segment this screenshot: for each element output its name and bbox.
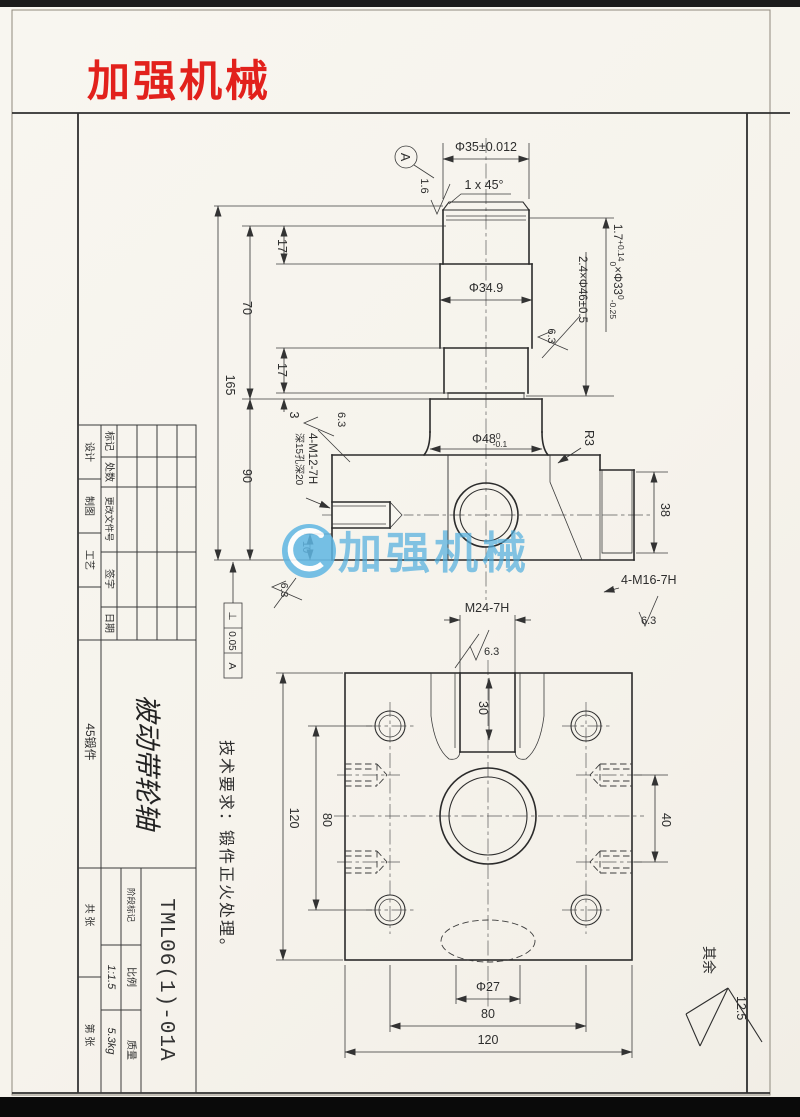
m24-label: M24-7H [465,601,509,615]
gdt-symbol: ⊥ [226,611,238,620]
rev-header-mark: 标记 [103,431,115,451]
watermark: 加强机械 [282,524,530,579]
dim-90-label: 90 [240,469,254,483]
sign-row-design: 设计 [83,442,96,462]
scale-value: 1:1.5 [105,965,117,990]
dim-d35-label: Φ35±0.012 [455,140,517,154]
plan-m24-section: 30 [431,673,544,759]
datum-a-label: A [398,153,412,162]
roughness-1_6-label: 1.6 [418,178,430,193]
dim-70-label: 70 [240,301,254,315]
default-roughness-note: 其余 12.5 [686,946,762,1046]
material-label: 45锻件 [83,723,97,760]
scan-edge-top [0,0,800,7]
groove-top-label: 1.7+0.140×Φ330-0.25 [608,224,626,319]
drawing-canvas: Φ35±0.012 A 1.6 1 x 45° 1.7+0.140×Φ330-0… [0,0,800,1117]
dim-d48-label: Φ480-0.1 [472,431,508,449]
gdt-frame: ⊥ 0.05 A [224,562,242,678]
scale-label: 比例 [125,967,138,987]
r3-label: R3 [582,430,596,446]
others-prefix-label: 其余 [701,946,717,974]
dim-17-top-label: 17 [275,239,289,253]
groove-mid-label: 2.4×Φ46±0.5 [576,256,588,323]
chamfer-label: 1 x 45° [464,178,503,192]
plan-side-holes-hidden [345,764,632,873]
watermark-text: 加强机械 [338,528,530,579]
dim-d27-label: Φ27 [476,980,500,994]
title-block: 标记 处数 更改文件号 签字 日期 设计 制图 工艺 45锻件 被动带轮轴 共 … [78,425,196,1093]
others-value-label: 12.5 [734,996,748,1020]
dim-3-label: 3 [287,412,301,419]
part-name: 被动带轮轴 [131,695,162,833]
m24-note: M24-7H 6.3 [444,601,531,676]
rev-header-sign: 签字 [103,569,116,589]
roughness-6_3-m24: 6.3 [484,646,499,658]
dim-r3: R3 [558,430,596,463]
stage-label: 阶段标记 [126,888,136,923]
rev-header-date: 日期 [103,613,115,633]
dim-40-label: 40 [659,813,673,827]
dim-165-label: 165 [223,375,237,396]
dim-80-left-label: 80 [320,813,334,827]
dim-80-bottom-label: 80 [481,1007,495,1021]
dim-17-low-label: 17 [275,363,289,377]
drawing-number: TML06(1)-01A [154,898,177,1061]
m12-thread-label: 4-M12-7H [306,433,318,484]
chamfer-note: 1 x 45° [449,178,511,204]
mass-label: 质量 [125,1040,137,1060]
mass-value: 5.3kg [105,1028,117,1056]
gdt-value: 0.05 [226,631,237,651]
front-view: Φ35±0.012 A 1.6 1 x 45° 1.7+0.140×Φ330-0… [214,138,677,678]
m12-depth-label: 深15孔深20 [293,433,305,486]
m12-note: 4-M12-7H 深15孔深20 6.3 [293,412,350,508]
sign-row-draw: 制图 [83,496,96,516]
tech-requirements-note: 技术要求：锻件正火处理。 [217,740,235,956]
plan-dims: 120 80 40 Φ27 80 120 [276,673,673,1058]
rev-header-docno: 更改文件号 [104,496,115,541]
gdt-datum-ref: A [226,662,238,669]
m16-note: 4-M16-7H 6.3 [604,573,677,627]
dim-120-bottom-label: 120 [478,1033,499,1047]
roughness-6_3-groove: 6.3 [545,328,557,343]
dim-30-label: 30 [476,701,490,715]
dim-38-label: 38 [658,503,672,517]
dim-groove-mid: 2.4×Φ46±0.5 6.3 [526,252,614,396]
dim-38: 38 [636,472,672,553]
sheet-total-label: 共 张 [83,904,95,927]
scan-edge-bottom [0,1097,800,1117]
sign-row-process: 工艺 [83,550,95,570]
roughness-6_3-m16: 6.3 [641,615,656,627]
sheet-no-label: 第 张 [83,1024,96,1047]
datum-a-flag: A 1.6 [395,146,450,214]
rev-header-count: 处数 [103,462,116,482]
dim-120-left-label: 120 [287,808,301,829]
dim-d349-label: Φ34.9 [469,281,503,295]
brand-logo-text: 加强机械 [87,57,271,107]
roughness-6_3-m12: 6.3 [335,412,347,427]
plan-outline [345,673,632,960]
m16-label: 4-M16-7H [621,573,677,587]
plan-view: 30 120 80 40 Φ27 [276,660,673,1058]
roughness-6_3-left: 6.3 [278,583,290,598]
